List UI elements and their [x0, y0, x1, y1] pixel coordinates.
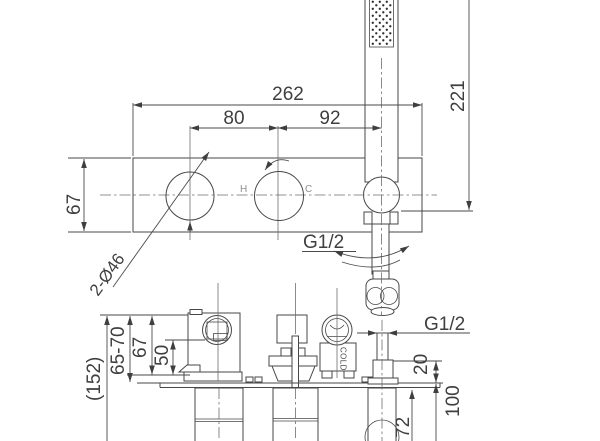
hose-thread-label: G1/2 — [303, 232, 344, 253]
front-view: 262 80 92 67 221 2-Ø46 H C G1/2 — [64, 0, 473, 316]
outlet-thread-label: G1/2 — [424, 314, 465, 335]
technical-drawing-page: 262 80 92 67 221 2-Ø46 H C G1/2 — [0, 0, 600, 441]
front-dimension-lines — [84, 0, 469, 287]
hose-nut-body — [366, 279, 399, 310]
valve-right: COLD — [320, 315, 377, 382]
shower-mixer-dimension-drawing: 262 80 92 67 221 2-Ø46 H C G1/2 — [0, 0, 600, 441]
outlet-flange — [368, 378, 398, 384]
outlet-nipple — [377, 333, 388, 360]
hot-label: H — [240, 184, 247, 195]
hand-shower-spray-face — [372, 0, 392, 45]
dim-install-depth-range: 65-70 — [108, 326, 129, 375]
dim-handshower-height: 221 — [448, 80, 469, 112]
dim-port-depth: 50 — [152, 345, 173, 366]
dim-total-width: 262 — [272, 84, 304, 105]
dim-outlet-center-offset: 72 — [393, 417, 414, 438]
cartridge-stem — [292, 336, 299, 388]
dim-right-spacing: 92 — [319, 108, 340, 129]
dim-outlet-below-plate: 100 — [443, 385, 464, 417]
holder-bracket-left — [364, 212, 372, 224]
cartridge-middle — [269, 315, 317, 388]
valve-left — [179, 310, 262, 383]
cold-marking: COLD — [339, 347, 348, 371]
dim-left-spacing: 80 — [223, 108, 244, 129]
side-view: COLD — [84, 283, 470, 441]
dim-body-depth: 67 — [130, 337, 151, 358]
holder-bracket-right — [390, 212, 398, 224]
hose-swivel-arc — [342, 260, 400, 267]
dim-plate-height: 67 — [64, 194, 85, 215]
dim-total-depth: (152) — [84, 357, 105, 401]
cold-label: C — [305, 184, 312, 195]
outlet-block — [373, 360, 393, 380]
hose-nut-end — [371, 308, 394, 316]
valve-body-right — [320, 343, 356, 371]
trim-knobs — [195, 388, 318, 441]
dim-outlet-protrusion: 20 — [411, 354, 432, 375]
